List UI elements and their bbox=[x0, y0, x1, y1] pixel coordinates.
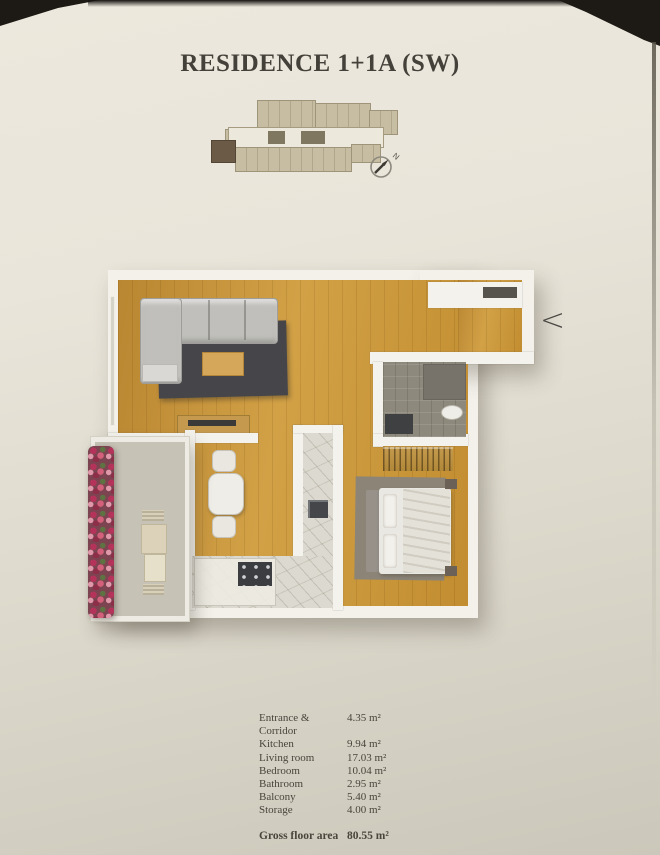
entrance-door-recess bbox=[483, 287, 517, 298]
gross-label: Gross floor area bbox=[259, 829, 347, 843]
area-row: Kitchen 9.94 m² bbox=[259, 738, 439, 751]
dining-chair bbox=[212, 450, 236, 472]
coffee-table bbox=[202, 352, 244, 376]
wardrobe bbox=[383, 447, 453, 471]
area-row: Storage 4.00 m² bbox=[259, 804, 439, 817]
area-label: Bedroom bbox=[259, 765, 347, 778]
bathroom-vanity bbox=[385, 414, 413, 434]
pillow bbox=[383, 534, 397, 568]
nightstand bbox=[445, 479, 457, 489]
gross-floor-area-row: Gross floor area 80.55 m² bbox=[259, 829, 439, 843]
area-row: Bathroom 2.95 m² bbox=[259, 778, 439, 791]
pillow bbox=[383, 494, 397, 528]
sofa-seam bbox=[208, 300, 210, 340]
wall-storage-left bbox=[293, 425, 303, 560]
page-title: RESIDENCE 1+1A (SW) bbox=[60, 50, 580, 78]
area-row: Entrance & Corridor 4.35 m² bbox=[259, 712, 439, 738]
bed-headboard bbox=[366, 490, 379, 572]
window bbox=[110, 296, 115, 426]
north-label: N bbox=[391, 151, 401, 162]
area-value: 5.40 m² bbox=[347, 791, 439, 804]
shower bbox=[423, 364, 466, 400]
cooktop bbox=[238, 562, 272, 586]
lounger-mat bbox=[142, 510, 164, 521]
area-label: Kitchen bbox=[259, 738, 347, 751]
area-label: Living room bbox=[259, 752, 347, 765]
area-value: 17.03 m² bbox=[347, 752, 439, 765]
lounger bbox=[141, 524, 167, 554]
area-value: 10.04 m² bbox=[347, 765, 439, 778]
toilet bbox=[441, 405, 463, 420]
chevron-left-icon[interactable]: < bbox=[540, 306, 565, 336]
area-value: 4.00 m² bbox=[347, 804, 439, 817]
sofa-throw bbox=[142, 364, 178, 382]
key-plan-block bbox=[257, 100, 316, 128]
key-plan-block bbox=[235, 147, 352, 172]
gross-value: 80.55 m² bbox=[347, 829, 439, 843]
nightstand bbox=[445, 566, 457, 576]
washing-machine bbox=[308, 500, 328, 518]
area-row: Living room 17.03 m² bbox=[259, 752, 439, 765]
north-arrow-icon: N bbox=[369, 152, 403, 180]
area-table: Entrance & Corridor 4.35 m² Kitchen 9.94… bbox=[259, 712, 439, 843]
lounger bbox=[144, 554, 166, 582]
area-value: 9.94 m² bbox=[347, 738, 439, 751]
floor-plan bbox=[98, 266, 548, 624]
area-label: Entrance & Corridor bbox=[259, 712, 347, 738]
storage-floor bbox=[303, 433, 333, 558]
key-plan-core bbox=[268, 131, 285, 144]
key-plan-core bbox=[301, 131, 325, 144]
area-row: Balcony 5.40 m² bbox=[259, 791, 439, 804]
brochure-page: RESIDENCE 1+1A (SW) N bbox=[0, 0, 660, 855]
area-row: Bedroom 10.04 m² bbox=[259, 765, 439, 778]
area-value: 2.95 m² bbox=[347, 778, 439, 791]
dining-table bbox=[208, 473, 244, 515]
sofa-seam bbox=[244, 300, 246, 340]
area-label: Bathroom bbox=[259, 778, 347, 791]
page-edge-top bbox=[88, 0, 572, 7]
tv bbox=[188, 420, 236, 426]
dining-chair bbox=[212, 516, 236, 538]
wall-bedroom-left bbox=[333, 425, 343, 610]
key-plan-block bbox=[315, 103, 371, 129]
key-plan-highlighted-unit bbox=[211, 140, 236, 163]
area-value: 4.35 m² bbox=[347, 712, 439, 738]
page-edge-top-left bbox=[0, 0, 100, 26]
area-label: Balcony bbox=[259, 791, 347, 804]
area-label: Storage bbox=[259, 804, 347, 817]
lounger-mat bbox=[143, 584, 164, 595]
balcony-flowers bbox=[88, 446, 114, 618]
page-edge-right bbox=[652, 42, 656, 702]
page-edge-top-right bbox=[558, 0, 660, 46]
bed-duvet bbox=[403, 489, 450, 573]
